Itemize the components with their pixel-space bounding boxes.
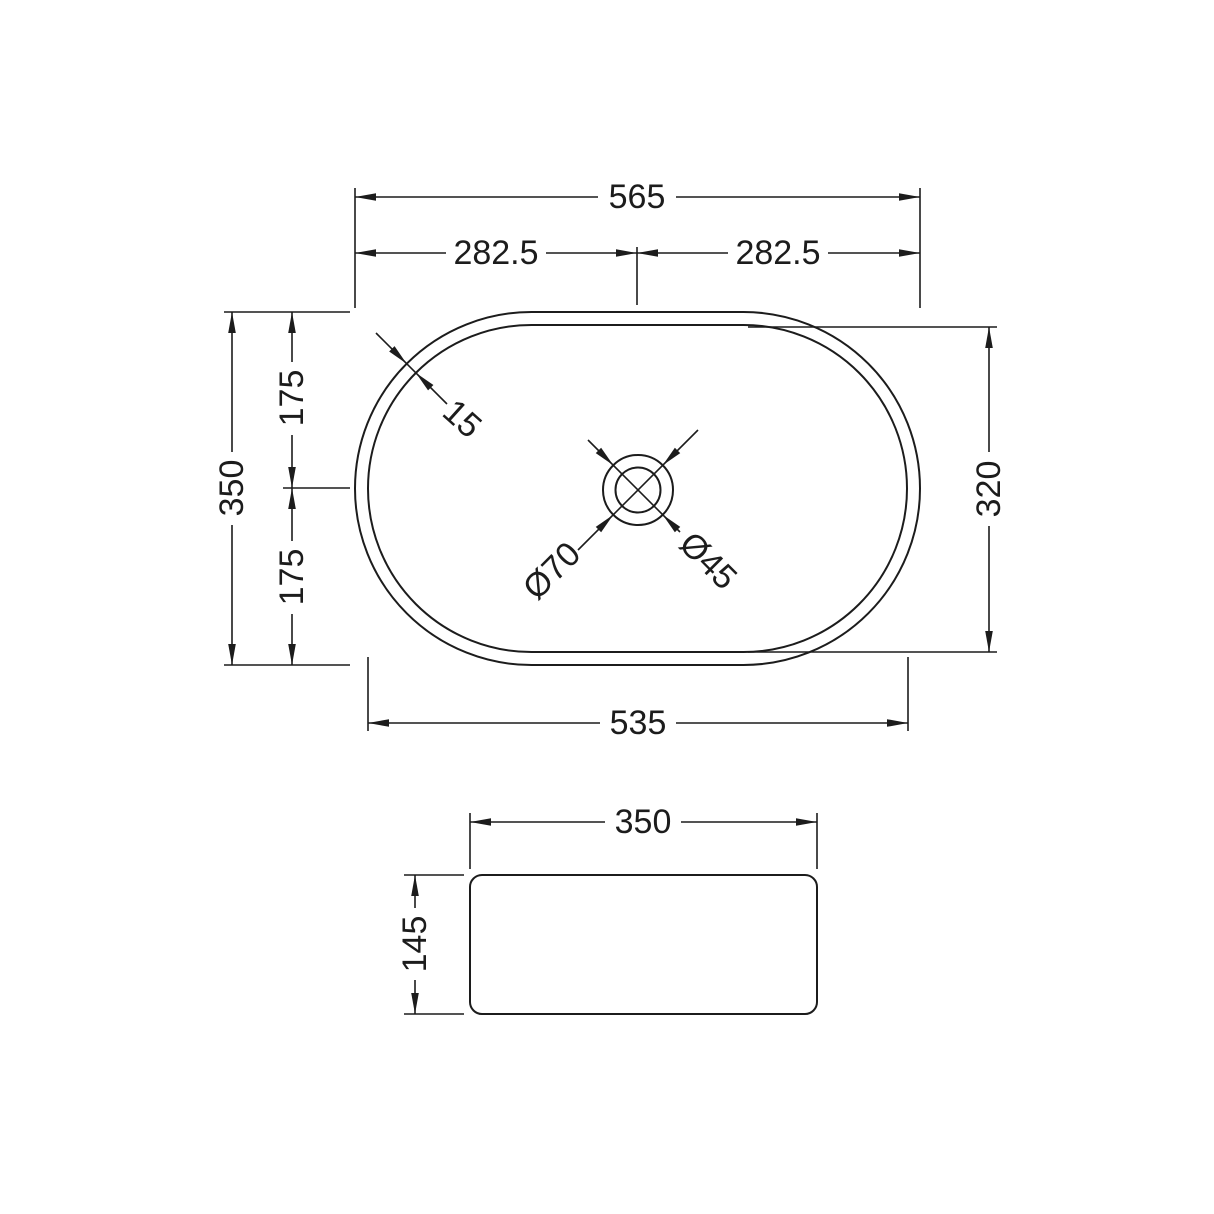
arrowhead (389, 346, 409, 366)
arrowhead (228, 312, 236, 333)
arrowhead (985, 631, 993, 652)
arrowhead (413, 370, 433, 390)
arrowhead (288, 488, 296, 509)
arrowhead (660, 448, 680, 468)
dim-waste-outer-diameter-label: Ø70 (516, 535, 588, 607)
arrowhead (288, 644, 296, 665)
arrowhead (660, 512, 680, 532)
arrowhead (470, 818, 491, 826)
arrowhead (288, 312, 296, 333)
dim-overall-depth-label: 350 (213, 460, 251, 517)
dim-half-width-right-label: 282.5 (735, 234, 820, 272)
arrowhead (355, 249, 376, 257)
arrowhead (596, 512, 616, 532)
arrowhead (228, 644, 236, 665)
side-view-body-outline (470, 875, 817, 1014)
dim-half-depth-lower-label: 175 (273, 549, 311, 606)
arrowhead (411, 993, 419, 1014)
technical-drawing-page: 565 282.5 282.5 350 175 175 (0, 0, 1214, 1214)
arrowhead (411, 875, 419, 896)
dim-side-width-label: 350 (615, 803, 672, 841)
arrowhead (985, 327, 993, 348)
basin-technical-drawing: 565 282.5 282.5 350 175 175 (0, 0, 1214, 1214)
dim-half-width-left-label: 282.5 (453, 234, 538, 272)
arrowhead (616, 249, 637, 257)
arrowhead (887, 719, 908, 727)
arrowhead (796, 818, 817, 826)
arrowhead (899, 193, 920, 201)
dim-overall-width-label: 565 (609, 178, 666, 216)
arrowhead (368, 719, 389, 727)
arrowhead (637, 249, 658, 257)
dim-waste-hole-diameter-label: Ø45 (672, 525, 744, 597)
arrowhead (899, 249, 920, 257)
dim-side-height-label: 145 (396, 916, 434, 973)
leader-line-rim-thickness (376, 333, 447, 404)
arrowhead (355, 193, 376, 201)
dim-inner-depth-label: 320 (970, 461, 1008, 518)
arrowhead (596, 448, 616, 468)
dim-inner-length-label: 535 (610, 704, 667, 742)
dim-half-depth-upper-label: 175 (273, 370, 311, 427)
arrowhead (288, 467, 296, 488)
